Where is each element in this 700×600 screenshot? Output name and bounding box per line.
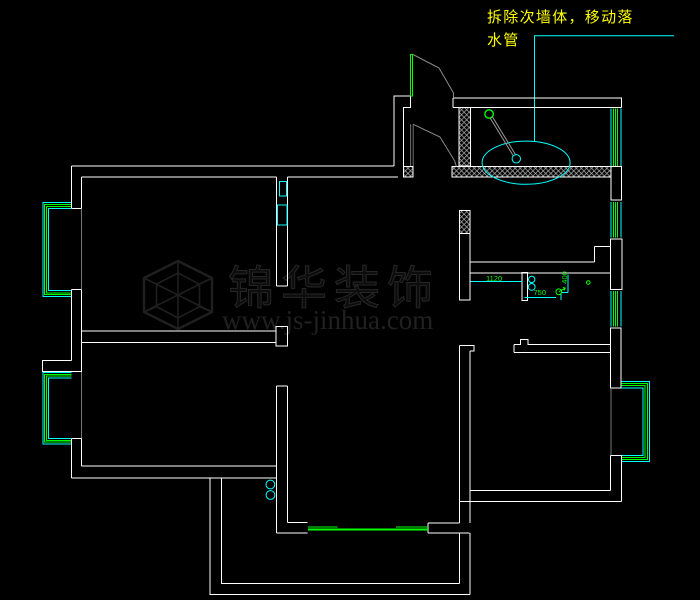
svg-text:拆除次墙体，移动落: 拆除次墙体，移动落: [487, 9, 634, 26]
svg-text:400: 400: [560, 271, 569, 284]
svg-text:750: 750: [534, 288, 547, 297]
svg-text:水管: 水管: [487, 32, 520, 49]
svg-text:1120: 1120: [486, 274, 502, 283]
